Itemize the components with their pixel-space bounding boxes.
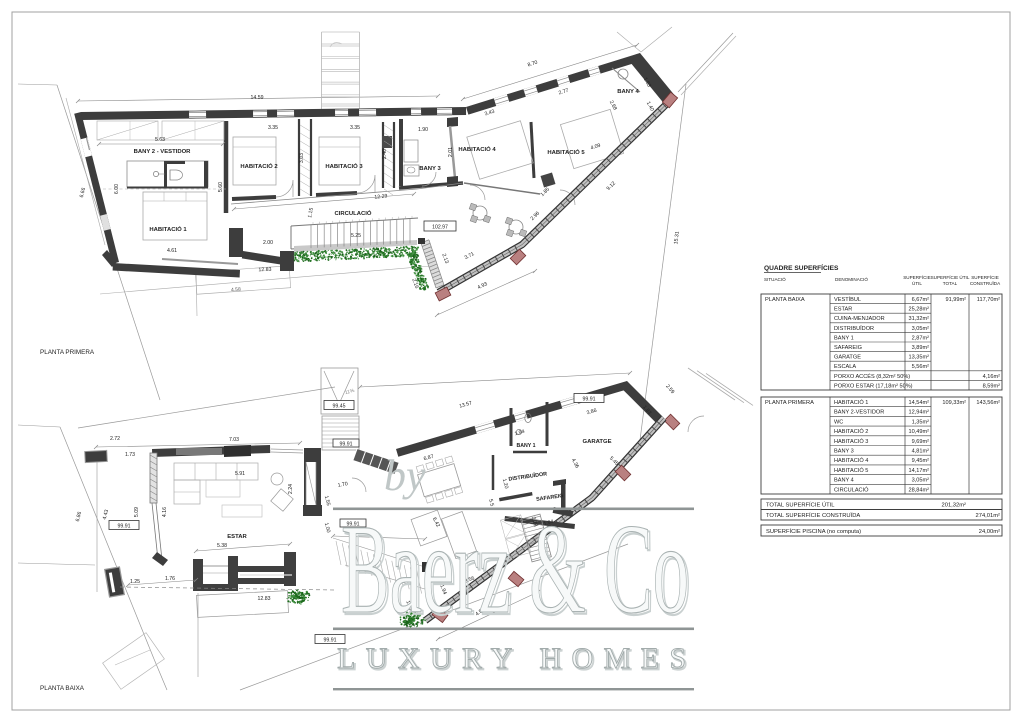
svg-text:4,81m²: 4,81m² (912, 449, 930, 455)
svg-text:3.35: 3.35 (350, 125, 360, 131)
svg-text:BANY 1: BANY 1 (517, 443, 536, 449)
svg-text:by: by (384, 451, 426, 500)
svg-text:VESTÍBUL: VESTÍBUL (834, 296, 861, 303)
svg-text:PLANTA PRIMERA: PLANTA PRIMERA (765, 400, 814, 406)
svg-text:BANY 2-VESTIDOR: BANY 2-VESTIDOR (834, 410, 884, 416)
svg-text:9,69m²: 9,69m² (912, 439, 930, 445)
svg-text:4,16m²: 4,16m² (983, 374, 1001, 380)
svg-text:4.61: 4.61 (167, 248, 177, 254)
svg-text:4.16: 4.16 (162, 507, 168, 517)
svg-text:3,05m²: 3,05m² (912, 478, 930, 484)
svg-text:HABITACIÓ 2: HABITACIÓ 2 (834, 428, 868, 435)
svg-text:BANY 3: BANY 3 (419, 166, 441, 172)
svg-text:SUPERFÍCIE ÚTIL: SUPERFÍCIE ÚTIL (931, 274, 970, 280)
svg-text:2.00: 2.00 (263, 240, 273, 246)
svg-text:BANY 4: BANY 4 (617, 89, 639, 95)
svg-text:SUPERFÍCIE PISCINA (no computa: SUPERFÍCIE PISCINA (no computa) (766, 528, 861, 535)
svg-text:2.24: 2.24 (288, 484, 294, 494)
svg-text:ESTAR: ESTAR (834, 307, 852, 313)
svg-text:PLANTA PRIMERA: PLANTA PRIMERA (40, 349, 95, 356)
svg-text:2,87m²: 2,87m² (912, 335, 930, 341)
svg-text:2.40: 2.40 (382, 149, 388, 159)
svg-text:DISTRIBUÏDOR: DISTRIBUÏDOR (834, 325, 874, 332)
svg-text:25,28m²: 25,28m² (908, 307, 929, 313)
svg-text:BANY 1: BANY 1 (834, 335, 854, 341)
svg-text:TOTAL: TOTAL (943, 281, 958, 286)
svg-text:5.91: 5.91 (235, 471, 245, 477)
svg-text:4.58: 4.58 (231, 287, 241, 294)
svg-text:5.25: 5.25 (351, 233, 361, 239)
svg-text:SUPERFÍCIE: SUPERFÍCIE (903, 274, 931, 280)
svg-text:12,94m²: 12,94m² (908, 410, 929, 416)
svg-text:99.91: 99.91 (118, 523, 131, 529)
svg-text:ÚTIL: ÚTIL (912, 280, 922, 286)
svg-text:LUXURY HOMES: LUXURY HOMES (337, 642, 695, 675)
svg-text:SITUACIÓ: SITUACIÓ (764, 276, 786, 282)
svg-text:7.03: 7.03 (229, 437, 239, 443)
svg-text:CONSTRUÏDA: CONSTRUÏDA (970, 280, 1001, 286)
svg-text:143,56m²: 143,56m² (976, 400, 1000, 406)
svg-text:HABITACIÓ 1: HABITACIÓ 1 (834, 399, 868, 406)
svg-text:HABITACIÓ 2: HABITACIÓ 2 (240, 162, 278, 170)
svg-text:2.01: 2.01 (448, 147, 454, 157)
svg-text:HABITACIÓ 3: HABITACIÓ 3 (325, 162, 363, 170)
svg-text:SUPERFÍCIE: SUPERFÍCIE (971, 274, 999, 280)
svg-text:99.91: 99.91 (583, 396, 596, 402)
svg-text:14,17m²: 14,17m² (908, 468, 929, 474)
svg-text:BANY 2 - VESTIDOR: BANY 2 - VESTIDOR (134, 149, 192, 155)
svg-text:GARATGE: GARATGE (834, 355, 861, 361)
svg-text:GARATGE: GARATGE (582, 439, 611, 445)
svg-text:TOTAL SUPERFÍCIE ÚTIL: TOTAL SUPERFÍCIE ÚTIL (766, 502, 835, 509)
svg-text:91,99m²: 91,99m² (945, 297, 966, 303)
svg-text:14,54m²: 14,54m² (908, 400, 929, 406)
svg-text:3,05m²: 3,05m² (912, 326, 930, 332)
svg-text:28,84m²: 28,84m² (908, 487, 929, 493)
svg-text:CIRCULACIÓ: CIRCULACIÓ (834, 486, 869, 493)
svg-text:31,32m²: 31,32m² (908, 316, 929, 322)
svg-text:HABITACIÓ 4: HABITACIÓ 4 (834, 457, 868, 464)
svg-text:HABITACIÓ 4: HABITACIÓ 4 (458, 145, 496, 153)
svg-text:HABITACIÓ 3: HABITACIÓ 3 (834, 438, 868, 445)
svg-text:1.76: 1.76 (165, 576, 175, 582)
svg-text:5.38: 5.38 (217, 543, 227, 549)
svg-text:PORXO ESTAR (17,18m² 50%): PORXO ESTAR (17,18m² 50%) (834, 383, 913, 389)
svg-text:PLANTA BAIXA: PLANTA BAIXA (40, 685, 85, 692)
svg-text:HABITACIÓ 1: HABITACIÓ 1 (149, 225, 187, 233)
svg-text:6,67m²: 6,67m² (912, 297, 930, 303)
svg-text:PORXO ACCÉS (8,32m² 50%): PORXO ACCÉS (8,32m² 50%) (834, 373, 910, 380)
svg-text:Baerz & Co: Baerz & Co (341, 498, 689, 640)
svg-text:ESCALA: ESCALA (834, 364, 856, 370)
svg-text:9,45m²: 9,45m² (912, 458, 930, 464)
svg-text:102.97: 102.97 (432, 224, 448, 230)
svg-text:99.91: 99.91 (340, 441, 353, 447)
svg-text:HABITACIÓ 5: HABITACIÓ 5 (834, 467, 868, 474)
svg-text:1.73: 1.73 (125, 452, 135, 458)
svg-text:PLANTA BAIXA: PLANTA BAIXA (765, 297, 805, 303)
svg-text:14.59: 14.59 (251, 95, 264, 101)
svg-text:BANY 4: BANY 4 (834, 478, 854, 484)
svg-text:3,89m²: 3,89m² (912, 345, 930, 351)
svg-text:10,49m²: 10,49m² (908, 429, 929, 435)
svg-text:CUINA-MENJADOR: CUINA-MENJADOR (834, 316, 885, 322)
svg-text:5,56m²: 5,56m² (912, 364, 930, 370)
svg-text:12.83: 12.83 (258, 267, 271, 273)
svg-text:2.72: 2.72 (110, 436, 120, 442)
svg-text:13,35m²: 13,35m² (908, 355, 929, 361)
svg-text:8,59m²: 8,59m² (983, 383, 1001, 389)
svg-text:CIRCULACIÓ: CIRCULACIÓ (335, 209, 372, 217)
svg-text:99.91: 99.91 (324, 637, 337, 643)
svg-text:SAFAREIG: SAFAREIG (834, 345, 862, 351)
svg-text:117,70m²: 117,70m² (977, 297, 1000, 303)
svg-text:1,35m²: 1,35m² (912, 419, 930, 425)
svg-text:6.00: 6.00 (114, 184, 120, 194)
svg-text:5.63: 5.63 (155, 137, 165, 143)
svg-text:274,01m²: 274,01m² (976, 513, 1001, 519)
svg-text:99.45: 99.45 (333, 403, 346, 409)
svg-text:1.90: 1.90 (418, 127, 428, 133)
svg-text:ESTAR: ESTAR (227, 534, 247, 540)
svg-text:24,00m²: 24,00m² (979, 529, 1000, 535)
svg-text:TOTAL SUPERFÍCIE CONSTRUÏDA: TOTAL SUPERFÍCIE CONSTRUÏDA (766, 512, 860, 519)
svg-text:5.09: 5.09 (134, 507, 140, 517)
svg-text:201,32m²: 201,32m² (942, 503, 967, 509)
svg-text:DENOMINACIÓ: DENOMINACIÓ (835, 276, 868, 282)
svg-text:BANY 3: BANY 3 (834, 449, 854, 455)
svg-text:QUADRE SUPERFÍCIES: QUADRE SUPERFÍCIES (764, 263, 839, 272)
svg-text:3.35: 3.35 (268, 125, 278, 131)
svg-text:3.03: 3.03 (299, 153, 305, 163)
svg-text:5.60: 5.60 (218, 182, 224, 192)
svg-text:12.83: 12.83 (258, 596, 271, 602)
svg-text:WC: WC (834, 419, 843, 425)
svg-text:HABITACIÓ 5: HABITACIÓ 5 (547, 148, 585, 156)
svg-text:109,33m²: 109,33m² (942, 400, 966, 406)
